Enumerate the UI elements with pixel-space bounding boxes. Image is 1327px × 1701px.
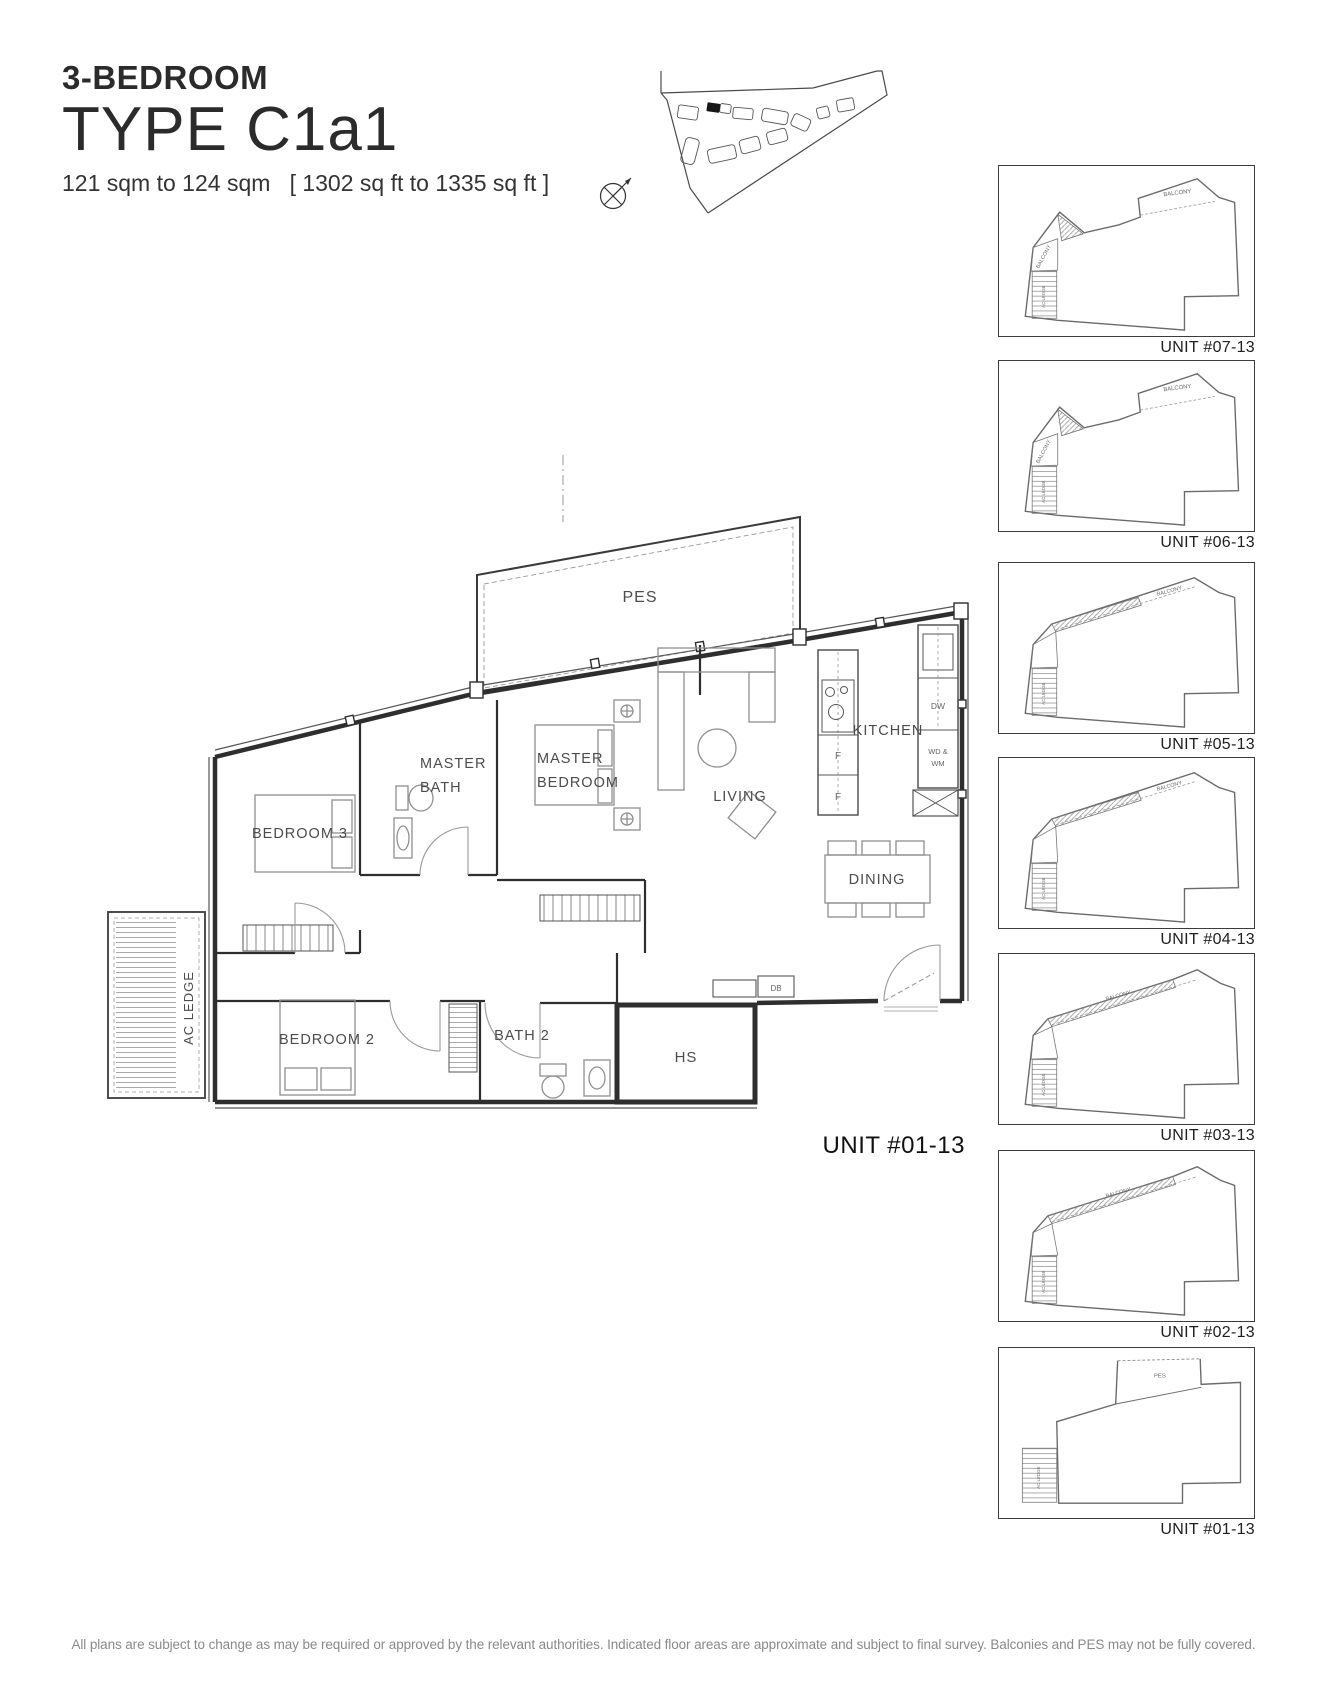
site-highlighted-block	[706, 102, 720, 113]
db-label: DB	[770, 984, 781, 993]
unit-diagram-04-13	[998, 757, 1255, 929]
site-location-map	[595, 50, 895, 238]
floor-plan: PES MASTER BATH MASTER BEDROOM BEDROOM 3…	[60, 440, 970, 1190]
unit-diagram-label: UNIT #03-13	[998, 1127, 1255, 1145]
fridge1-label: F	[835, 751, 841, 762]
master-bath-label-1: MASTER	[420, 756, 486, 772]
washer-label-2: WM	[931, 759, 944, 768]
bath2-label: BATH 2	[494, 1028, 550, 1044]
site-boundary	[661, 71, 887, 213]
bedroom3-label: BEDROOM 3	[252, 826, 348, 842]
master-bath-label-2: BATH	[420, 780, 462, 796]
living-label: LIVING	[713, 789, 767, 805]
pes-label: PES	[622, 589, 657, 606]
kitchen-fixtures	[818, 625, 958, 816]
unit-diagram-05-13	[998, 562, 1255, 734]
main-unit-number: UNIT #01-13	[735, 1132, 965, 1160]
master-bedroom-label-2: BEDROOM	[537, 775, 619, 791]
unit-diagram-03-13	[998, 953, 1255, 1125]
bedroom2-label: BEDROOM 2	[279, 1032, 375, 1048]
room-labels: PES MASTER BATH MASTER BEDROOM BEDROOM 3…	[181, 589, 948, 1066]
unit-diagram-label: UNIT #02-13	[998, 1324, 1255, 1342]
site-buildings	[677, 98, 855, 166]
unit-diagram-label: UNIT #05-13	[998, 736, 1255, 754]
db-boxes	[713, 976, 794, 997]
unit-diagram-label: UNIT #01-13	[998, 1521, 1255, 1539]
dishwasher-label: DW	[931, 701, 945, 711]
unit-diagram-06-13	[998, 360, 1255, 532]
unit-type-code: TYPE C1a1	[62, 98, 549, 162]
unit-diagram-01-13	[998, 1347, 1255, 1519]
unit-diagram-02-13	[998, 1150, 1255, 1322]
fridge2-label: F	[835, 792, 841, 803]
kitchen-label: KITCHEN	[853, 723, 924, 739]
unit-diagram-label: UNIT #04-13	[998, 931, 1255, 949]
dining-label: DINING	[849, 872, 906, 888]
disclaimer-text: All plans are subject to change as may b…	[0, 1637, 1327, 1652]
unit-diagram-label: UNIT #06-13	[998, 534, 1255, 552]
master-bedroom-label-1: MASTER	[537, 751, 603, 767]
bedroom-type-label: 3-BEDROOM	[62, 58, 549, 98]
washer-label-1: WD &	[928, 747, 948, 756]
unit-diagram-07-13	[998, 165, 1255, 337]
bath-fixtures	[394, 785, 610, 1098]
compass-icon	[601, 178, 632, 209]
unit-area-text: 121 sqm to 124 sqm [ 1302 sq ft to 1335 …	[62, 168, 549, 198]
hs-label: HS	[675, 1049, 698, 1066]
unit-diagram-label: UNIT #07-13	[998, 339, 1255, 357]
ac-ledge-label: AC LEDGE	[181, 971, 196, 1045]
title-block: 3-BEDROOM TYPE C1a1 121 sqm to 124 sqm […	[62, 58, 549, 198]
